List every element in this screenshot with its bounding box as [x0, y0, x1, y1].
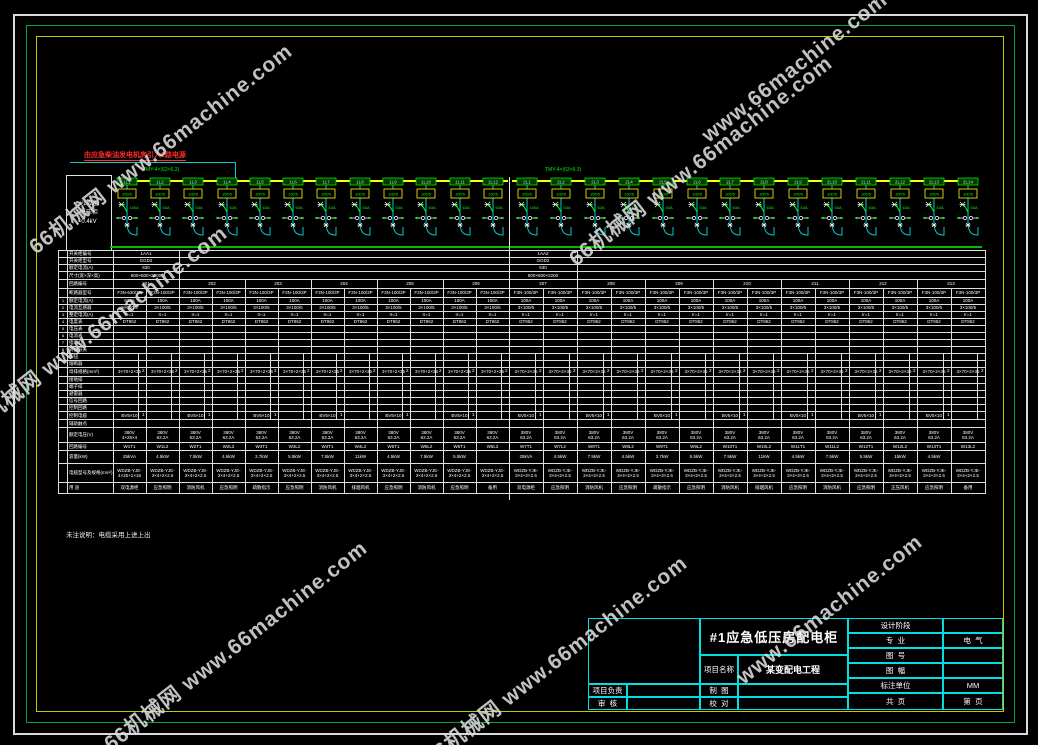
table-cell: 380V63.2A: [815, 428, 849, 443]
table-cell: W2L2: [212, 443, 245, 451]
table-cell: [443, 340, 476, 347]
table-cell: [917, 347, 951, 354]
svg-text:2L4: 2L4: [625, 180, 633, 185]
table-cell: [311, 326, 344, 333]
table-cell: W4T1: [311, 443, 344, 451]
table-row: 断路器型号F3N-630/3PF3N-100/3PF3N-100/3PF3N-1…: [59, 289, 986, 298]
table-cell: 3×70+2×352: [245, 368, 278, 377]
table-row: 避雷器: [59, 391, 986, 398]
table-cell: [679, 398, 713, 405]
table-cell: DT862: [917, 319, 951, 326]
table-cell: 204: [311, 280, 377, 289]
table-cell: DT862: [645, 319, 679, 326]
table-cell: [849, 326, 883, 333]
table-cell: [577, 361, 611, 368]
table-cell: 3×100/5: [577, 305, 611, 312]
table-cell: WDZB-YJE-3×4+2×2.5: [781, 464, 815, 483]
drawing-title: #1应急低压房配电柜: [700, 618, 848, 655]
table-cell: F3N-100/3P: [443, 289, 476, 298]
table-cell: [815, 340, 849, 347]
table-cell: [577, 405, 611, 412]
info-line-2: 低压柜: [80, 209, 98, 218]
table-cell: WDZB-YJE-3×4+2×2.5: [747, 464, 781, 483]
table-cell: 7.5kW: [410, 451, 443, 464]
table-cell: [543, 361, 577, 368]
table-cell: [679, 340, 713, 347]
svg-text:2L3: 2L3: [591, 180, 599, 185]
table-cell: DT862: [815, 319, 849, 326]
table-cell: [476, 377, 509, 384]
table-cell: [212, 347, 245, 354]
feeder-drawing: 1L10 100/5 63A: [409, 175, 443, 248]
table-cell: 指示灯: [68, 340, 114, 347]
table-row: 开关柜型号GGD2GGD2: [59, 258, 986, 265]
table-cell: 211: [781, 280, 849, 289]
table-cell: [212, 420, 245, 428]
table-cell: DT862: [113, 319, 146, 326]
checker-value: [738, 697, 848, 710]
table-cell: [377, 405, 410, 412]
table-cell: [476, 347, 509, 354]
feeder-unit: 1L6 100/5 63A: [276, 175, 310, 248]
feeder-unit: 2L3 100/5 63A: [578, 175, 612, 248]
table-cell: [179, 333, 212, 340]
table-row: 辅助触点: [59, 420, 986, 428]
table-cell: [443, 398, 476, 405]
table-cell: [311, 377, 344, 384]
feeder-drawing: 1L2 100/5 63A: [143, 175, 177, 248]
table-cell: Ir=1: [883, 312, 917, 319]
table-cell: W13T1: [917, 443, 951, 451]
table-cell: 380V63.2A: [679, 428, 713, 443]
table-row: 端子排: [59, 384, 986, 391]
table-cell: [146, 391, 179, 398]
table-cell: DT862: [278, 319, 311, 326]
panel-schedule-table: 开关柜编号1AA11AA2开关柜型号GGD2GGD2额定电流(A)630630尺…: [58, 250, 986, 494]
table-cell: [278, 377, 311, 384]
table-cell: 380V63.2A: [476, 428, 509, 443]
table-cell: Ir=1: [311, 312, 344, 319]
table-cell: [278, 391, 311, 398]
table-cell: 疏散指示: [245, 483, 278, 494]
table-cell: 100A: [917, 298, 951, 305]
table-cell: 25kVA: [509, 451, 543, 464]
table-cell: Ir=1: [917, 312, 951, 319]
table-cell: 3×70+2×352: [146, 368, 179, 377]
table-row: 用 途双电源柜应急照明消防风机应急照明疏散指示应急照明消防风机排烟风机应急照明消…: [59, 483, 986, 494]
feeder-unit: 1L11 100/5 63A: [443, 175, 477, 248]
svg-text:100/5: 100/5: [188, 192, 199, 197]
table-cell: [509, 333, 543, 340]
svg-text:63A: 63A: [429, 205, 436, 210]
svg-text:100/5: 100/5: [624, 192, 635, 197]
table-cell: [245, 333, 278, 340]
svg-text:2L1: 2L1: [523, 180, 531, 185]
table-cell: [59, 280, 68, 289]
table-cell: F3N-100/3P: [212, 289, 245, 298]
svg-text:63A: 63A: [767, 205, 774, 210]
feeder-drawing: 1L12 100/5 63A: [476, 175, 510, 248]
table-cell: [577, 333, 611, 340]
incoming-leader-horizontal: [70, 162, 236, 163]
table-cell: DT862: [883, 319, 917, 326]
table-cell: [781, 354, 815, 361]
table-cell: [179, 384, 212, 391]
svg-text:100/5: 100/5: [321, 192, 332, 197]
bus-spec-left: TMY-4×(63×6.3): [143, 167, 179, 173]
table-cell: [509, 420, 543, 428]
table-cell: [611, 340, 645, 347]
table-cell: W2T1: [179, 443, 212, 451]
table-cell: [849, 340, 883, 347]
table-cell: 380V63.2A: [917, 428, 951, 443]
table-cell: 8: [59, 347, 68, 354]
table-row: 电缆型号及规格(mm²)WDZB-YJE-4×25+1×16WDZB-YJE-3…: [59, 464, 986, 483]
table-cell: [747, 333, 781, 340]
table-cell: 转换开关: [68, 347, 114, 354]
table-cell: [59, 412, 68, 420]
table-cell: [611, 361, 645, 368]
table-cell: F3N-100/3P: [311, 289, 344, 298]
table-cell: 100A: [951, 298, 985, 305]
table-cell: [476, 361, 509, 368]
table-cell: Ir=1: [146, 312, 179, 319]
table-cell: 3×100/5: [212, 305, 245, 312]
table-cell: 380V63.2A: [509, 428, 543, 443]
table-cell: [278, 384, 311, 391]
table-cell: 回路编号: [68, 443, 114, 451]
table-cell: 开关柜型号: [68, 258, 114, 265]
svg-text:63A: 63A: [699, 205, 706, 210]
table-row: 母排规格(mm²)3×70+2×3523×70+2×3523×70+2×3523…: [59, 368, 986, 377]
table-cell: 1AA2: [509, 251, 577, 258]
table-cell: F3N-100/3P: [146, 289, 179, 298]
table-cell: [543, 384, 577, 391]
svg-text:1L4: 1L4: [223, 180, 231, 185]
specialty-label: 专 业: [848, 633, 943, 648]
table-cell: 3×100/5: [278, 305, 311, 312]
table-cell: 100A: [377, 298, 410, 305]
table-cell: 3: [59, 312, 68, 319]
table-cell: 203: [245, 280, 311, 289]
table-cell: DT862: [377, 319, 410, 326]
table-cell: Ir=1: [747, 312, 781, 319]
svg-text:100/5: 100/5: [861, 192, 872, 197]
table-cell: [245, 420, 278, 428]
table-cell: W1L2: [146, 443, 179, 451]
table-cell: 3.7kW: [245, 451, 278, 464]
table-cell: [679, 420, 713, 428]
table-cell: [747, 405, 781, 412]
table-cell: 应急照明: [278, 483, 311, 494]
table-cell: 3×70+2×352: [849, 368, 883, 377]
table-cell: [883, 384, 917, 391]
table-cell: WDZB-YJE-3×4+2×2.5: [377, 464, 410, 483]
table-cell: [59, 368, 68, 377]
table-cell: [212, 361, 245, 368]
feeder-unit: 1L9 100/5 63A: [376, 175, 410, 248]
table-cell: 3×70+2×352: [410, 368, 443, 377]
table-cell: 5.5kW: [443, 451, 476, 464]
table-cell: 3×600/5: [113, 305, 146, 312]
table-cell: [577, 391, 611, 398]
table-cell: [509, 377, 543, 384]
table-cell: [883, 398, 917, 405]
svg-text:100/5: 100/5: [827, 192, 838, 197]
svg-text:63A: 63A: [462, 205, 469, 210]
table-cell: W10L2: [747, 443, 781, 451]
table-cell: Ir=1: [611, 312, 645, 319]
svg-text:1L7: 1L7: [323, 180, 331, 185]
table-cell: [59, 428, 68, 443]
table-cell: [747, 391, 781, 398]
table-cell: [747, 347, 781, 354]
table-cell: [781, 377, 815, 384]
table-cell: BV5×101: [577, 412, 611, 420]
table-cell: [410, 326, 443, 333]
feeder-drawing: 2L11 100/5 63A: [849, 175, 883, 248]
table-cell: [377, 377, 410, 384]
table-cell: DT862: [611, 319, 645, 326]
svg-text:1L3: 1L3: [189, 180, 197, 185]
table-cell: F3N-100/3P: [849, 289, 883, 298]
table-cell: 3×70+2×352: [577, 368, 611, 377]
table-cell: 3×70+2×352: [113, 368, 146, 377]
drafter-label: 制 图: [700, 684, 738, 697]
table-cell: W5T1: [377, 443, 410, 451]
table-cell: 3×100/5: [679, 305, 713, 312]
table-cell: 6: [59, 333, 68, 340]
table-cell: DT862: [179, 319, 212, 326]
table-cell: [951, 326, 985, 333]
feeder-unit: 2L10 100/5 63A: [815, 175, 849, 248]
table-cell: 201: [113, 280, 179, 289]
feeder-unit: 2L1 200/5 100A: [510, 175, 544, 248]
table-cell: 3×70+2×352: [443, 368, 476, 377]
table-cell: 4.5kW: [917, 451, 951, 464]
svg-text:63A: 63A: [835, 205, 842, 210]
table-cell: [146, 398, 179, 405]
table-cell: Ir=1: [443, 312, 476, 319]
svg-text:100/5: 100/5: [895, 192, 906, 197]
table-cell: 电度表: [68, 319, 114, 326]
table-cell: W3L2: [278, 443, 311, 451]
svg-text:100/5: 100/5: [421, 192, 432, 197]
table-cell: [917, 377, 951, 384]
table-cell: 消防风机: [815, 483, 849, 494]
table-cell: [781, 384, 815, 391]
table-row: 控制电缆BV5×101BV5×101BV5×101BV5×101BV5×101B…: [59, 412, 986, 420]
table-cell: WDZB-YJE-3×4+2×2.5: [443, 464, 476, 483]
table-cell: [509, 398, 543, 405]
table-cell: [951, 340, 985, 347]
table-cell: [509, 391, 543, 398]
table-cell: 4.5kW: [377, 451, 410, 464]
table-cell: [212, 340, 245, 347]
table-cell: 4.5kW: [212, 451, 245, 464]
table-cell: [245, 405, 278, 412]
table-cell: 380V63.2A: [611, 428, 645, 443]
svg-text:100/5: 100/5: [556, 192, 567, 197]
table-cell: [113, 326, 146, 333]
svg-text:63A: 63A: [902, 205, 909, 210]
table-cell: 206: [443, 280, 509, 289]
table-cell: [645, 405, 679, 412]
table-cell: [212, 412, 245, 420]
table-cell: 100A: [212, 298, 245, 305]
table-cell: WDZB-YJE-3×4+2×2.5: [679, 464, 713, 483]
table-cell: DT862: [747, 319, 781, 326]
table-cell: W12T1: [849, 443, 883, 451]
table-cell: [883, 412, 917, 420]
table-cell: WDZB-YJE-3×4+2×2.5: [917, 464, 951, 483]
table-cell: BV5×101: [781, 412, 815, 420]
table-cell: F3N-630/3P: [113, 289, 146, 298]
table-cell: [509, 361, 543, 368]
table-cell: [311, 354, 344, 361]
table-cell: F3N-100/3P: [645, 289, 679, 298]
table-cell: WDZB-YJE-3×4+2×2.5: [212, 464, 245, 483]
table-cell: [59, 405, 68, 412]
table-cell: DT862: [543, 319, 577, 326]
table-cell: [146, 333, 179, 340]
table-cell: Ir=1: [577, 312, 611, 319]
table-cell: 双电源柜: [509, 483, 543, 494]
table-cell: 3×100/5: [311, 305, 344, 312]
table-cell: [344, 391, 377, 398]
table-cell: 380V63.2A: [883, 428, 917, 443]
table-cell: F3N-100/3P: [476, 289, 509, 298]
table-cell: [849, 405, 883, 412]
table-cell: [146, 340, 179, 347]
table-cell: BV5×101: [645, 412, 679, 420]
table-cell: WDZB-YJE-3×4+2×2.5: [883, 464, 917, 483]
table-cell: [543, 398, 577, 405]
svg-text:100/5: 100/5: [455, 192, 466, 197]
table-cell: 100A: [883, 298, 917, 305]
table-cell: [344, 347, 377, 354]
table-cell: 380V63.2A: [849, 428, 883, 443]
table-cell: [59, 398, 68, 405]
table-cell: [645, 391, 679, 398]
table-cell: [645, 384, 679, 391]
table-cell: [179, 405, 212, 412]
table-cell: Ir=1: [645, 312, 679, 319]
table-cell: [377, 420, 410, 428]
table-cell: [679, 384, 713, 391]
table-cell: 电压表: [68, 326, 114, 333]
table-cell: Ir=1: [509, 312, 543, 319]
table-cell: [311, 347, 344, 354]
table-cell: WDZB-YJE-3×4+2×2.5: [713, 464, 747, 483]
table-cell: [311, 340, 344, 347]
table-cell: F3N-100/3P: [917, 289, 951, 298]
table-cell: [59, 289, 68, 298]
table-cell: [781, 420, 815, 428]
table-cell: [645, 354, 679, 361]
table-cell: [410, 398, 443, 405]
watermark-text: www.66machine.com: [698, 0, 893, 148]
svg-text:100/5: 100/5: [488, 192, 499, 197]
table-cell: 接地排: [68, 377, 114, 384]
table-cell: W1T1: [113, 443, 146, 451]
table-cell: [344, 377, 377, 384]
table-cell: [245, 326, 278, 333]
table-cell: DT862: [849, 319, 883, 326]
table-cell: 5: [59, 326, 68, 333]
table-cell: [311, 361, 344, 368]
table-row: 回路编号201202203204205206207208209210211212…: [59, 280, 986, 289]
table-cell: [849, 347, 883, 354]
table-cell: DT862: [344, 319, 377, 326]
table-cell: [747, 326, 781, 333]
svg-text:100/5: 100/5: [155, 192, 166, 197]
table-cell: 备用: [476, 483, 509, 494]
svg-text:100/5: 100/5: [288, 192, 299, 197]
table-cell: [278, 333, 311, 340]
table-cell: 800×600×2200: [509, 272, 577, 280]
table-cell: [443, 354, 476, 361]
table-cell: 380V63.2A: [543, 428, 577, 443]
table-cell: DT862: [509, 319, 543, 326]
table-cell: 4.5kW: [611, 451, 645, 464]
table-cell: [410, 361, 443, 368]
table-cell: 3×100/5: [849, 305, 883, 312]
table-cell: [245, 398, 278, 405]
table-cell: WDZB-YJE-3×4+2×2.5: [577, 464, 611, 483]
table-cell: 100A: [611, 298, 645, 305]
feeder-drawing: 1L9 100/5 63A: [376, 175, 410, 248]
review-label: 审 核: [588, 697, 627, 710]
table-cell: [113, 347, 146, 354]
table-cell: 5.5kW: [679, 451, 713, 464]
table-cell: [377, 361, 410, 368]
table-cell: [278, 326, 311, 333]
table-cell: 380V63.2A: [645, 428, 679, 443]
table-row: 开关柜编号1AA11AA2: [59, 251, 986, 258]
table-cell: WDZB-YJE-3×4+2×2.5: [849, 464, 883, 483]
table-cell: [179, 377, 212, 384]
feeder-drawing: 2L3 100/5 63A: [578, 175, 612, 248]
table-cell: [212, 377, 245, 384]
table-cell: 100A: [179, 298, 212, 305]
table-cell: [747, 412, 781, 420]
svg-text:2L2: 2L2: [557, 180, 565, 185]
project-name-label: 项目名称: [700, 655, 738, 684]
svg-text:100/5: 100/5: [929, 192, 940, 197]
table-cell: BV5×101: [113, 412, 146, 420]
table-cell: [59, 464, 68, 483]
table-cell: WDZB-YJE-3×4+2×2.5: [344, 464, 377, 483]
svg-text:100/5: 100/5: [725, 192, 736, 197]
table-cell: 380V63.2A: [577, 428, 611, 443]
table-cell: [849, 333, 883, 340]
table-cell: [278, 405, 311, 412]
table-cell: [476, 391, 509, 398]
table-cell: 3×100/5: [747, 305, 781, 312]
table-cell: 3×100/5: [179, 305, 212, 312]
table-cell: [713, 347, 747, 354]
table-cell: W7L2: [543, 443, 577, 451]
table-cell: [543, 391, 577, 398]
table-cell: F3N-100/3P: [577, 289, 611, 298]
table-cell: [245, 384, 278, 391]
table-cell: 100A: [577, 298, 611, 305]
table-cell: [951, 412, 985, 420]
table-cell: 380V63.2A: [410, 428, 443, 443]
table-cell: [883, 347, 917, 354]
table-cell: 209: [645, 280, 713, 289]
